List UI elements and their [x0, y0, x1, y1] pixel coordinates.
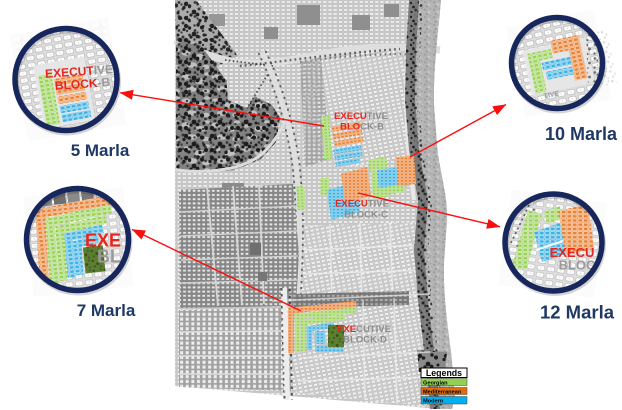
svg-text:10 Marla: 10 Marla: [545, 124, 618, 144]
svg-text:EXECUTIVE: EXECUTIVE: [335, 199, 389, 210]
svg-text:Georgian: Georgian: [423, 380, 448, 386]
svg-text:5 Marla: 5 Marla: [71, 141, 130, 160]
svg-text:BLOCK-B: BLOCK-B: [340, 122, 384, 133]
svg-text:Legends: Legends: [426, 368, 462, 378]
svg-text:EXECUTIVE: EXECUTIVE: [337, 324, 391, 335]
svg-text:7 Marla: 7 Marla: [77, 301, 136, 320]
svg-text:BLOCK-C: BLOCK-C: [344, 210, 388, 221]
svg-text:EXECUTIVE: EXECUTIVE: [334, 111, 388, 122]
svg-text:Mediterranean: Mediterranean: [423, 389, 462, 395]
svg-text:BLOCK-D: BLOCK-D: [343, 335, 387, 346]
svg-text:12 Marla: 12 Marla: [540, 302, 615, 323]
svg-text:BL: BL: [97, 247, 121, 267]
svg-text:Modern: Modern: [423, 399, 444, 405]
